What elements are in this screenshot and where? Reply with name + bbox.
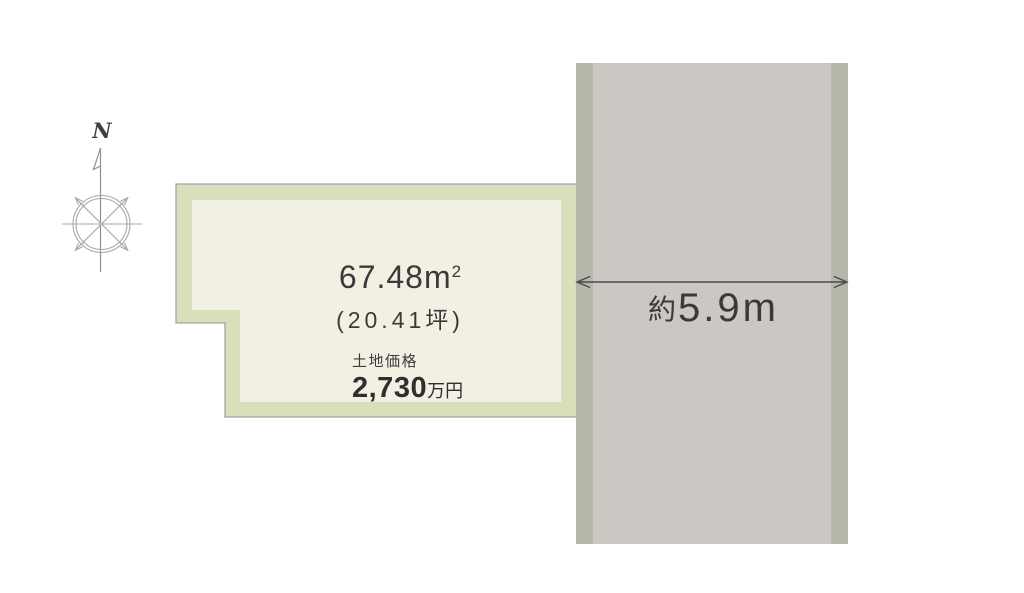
road-width-value: 5.9	[678, 286, 743, 330]
price-label: 土地価格	[352, 350, 505, 371]
site-plan-canvas: N 67.48m2 (20.41坪) 土地価格 2,730万円 約5.9m	[0, 0, 1024, 593]
site-plan-drawing	[0, 0, 1024, 593]
area-unit-superscript: 2	[452, 262, 461, 281]
area-value-line: 67.48m2	[295, 260, 505, 295]
area-unit: m	[424, 259, 452, 295]
price-value: 2,730	[352, 372, 427, 404]
road-width-label: 約5.9m	[576, 286, 848, 331]
price-line: 2,730万円	[352, 372, 505, 405]
land-plot-info: 67.48m2 (20.41坪) 土地価格 2,730万円	[295, 260, 505, 405]
compass-north-label: N	[88, 118, 116, 143]
area-tsubo-line: (20.41坪)	[295, 301, 505, 335]
compass-rose-icon	[62, 196, 142, 253]
road-width-prefix: 約	[648, 294, 678, 325]
price-unit: 万円	[427, 381, 463, 401]
price-block: 土地価格 2,730万円	[295, 350, 505, 405]
area-value: 67.48	[339, 259, 424, 295]
road-width-unit: m	[743, 286, 776, 330]
north-arrow-icon	[94, 148, 101, 272]
